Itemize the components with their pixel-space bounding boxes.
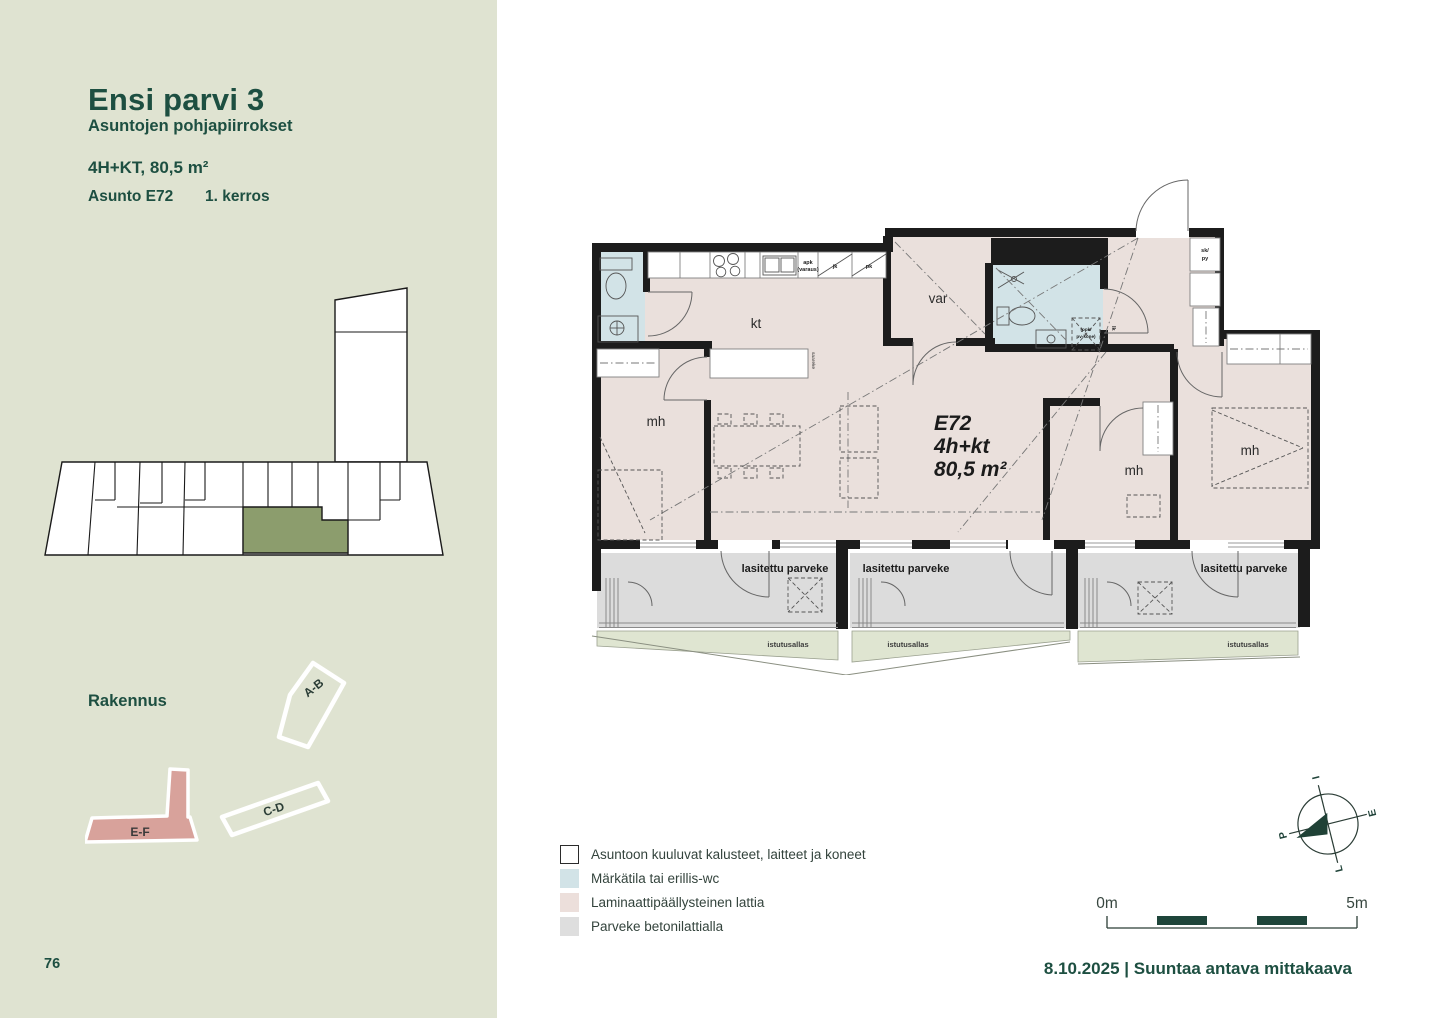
brochure-page: Ensi parvi 3 Asuntojen pohjapiirrokset 4… [0,0,1440,1018]
washer-label-line2: pv-kone) [1076,334,1096,339]
sidebar: Ensi parvi 3 Asuntojen pohjapiirrokset 4… [0,0,497,1018]
dishwasher-label-line1: apk [803,260,813,266]
planter-label-2: istutusallas [887,640,928,649]
legend-swatch-laminate [560,893,579,912]
compass-label-right: E [1366,808,1378,818]
apartment-id: Asunto E72 [88,188,173,205]
balcony-label-1: lasitettu parveke [742,563,829,575]
unit-id-label: E72 [934,412,972,435]
legend-item: Asuntoon kuuluvat kalusteet, laitteet ja… [560,842,866,866]
dishwasher-label-line2: (varaus) [797,267,819,273]
legend-swatch-fixtures [560,845,579,864]
washer-label-line1: (ppk/ [1081,327,1093,332]
legend-label: Märkätila tai erillis-wc [591,871,719,886]
page-subtitle: Asuntojen pohjapiirrokset [88,117,292,136]
room-label-bedroom-3: mh [1241,443,1260,458]
closet-label-line2: py [1202,256,1209,262]
room-label-bedroom-2: mh [1125,463,1144,478]
island-label: saareke [810,352,816,369]
fridge-label: jk [832,264,839,270]
page-title: Ensi parvi 3 [88,82,264,118]
planter-label-1: istutusallas [767,640,808,649]
compass-label-bottom: L [1332,864,1345,872]
compass-label-top: I [1310,774,1322,780]
floor-label: 1. kerros [205,188,270,206]
unit-type-label: 4h+kt [933,435,990,458]
legend-swatch-balcony [560,917,579,936]
building-ab-outline [279,663,344,747]
room-label-storage: var [929,291,948,306]
scale-start-label: 0m [1096,895,1118,912]
balcony-label-2: lasitettu parveke [863,563,950,575]
legend-item: Laminaattipäällysteinen lattia [560,890,866,914]
closet-label-line1: sk/ [1201,248,1209,254]
unit-area-label: 80,5 m² [934,458,1007,481]
legend-label: Laminaattipäällysteinen lattia [591,895,764,910]
page-number: 76 [44,956,60,972]
planter-label-3: istutusallas [1227,640,1268,649]
legend-label: Asuntoon kuuluvat kalusteet, laitteet ja… [591,847,866,862]
legend-item: Märkätila tai erillis-wc [560,866,866,890]
site-diagram: A-B C-D E-F [85,655,355,855]
scale-bar: 0m 5m [1085,888,1370,938]
legend: Asuntoon kuuluvat kalusteet, laitteet ja… [560,842,866,938]
scale-end-label: 5m [1346,895,1368,912]
balcony-label-3: lasitettu parveke [1201,563,1288,575]
building-ef-label: E-F [130,825,149,839]
floor-plan: kt var mh mh mh E72 4h+kt 80,5 m² lasite… [585,170,1335,675]
date-and-scale-note: 8.10.2025 | Suuntaa antava mittakaava [1000,959,1352,979]
compass-rose: I E L P [1278,772,1378,872]
legend-label: Parveke betonilattialla [591,919,723,934]
legend-swatch-wet-room [560,869,579,888]
room-label-kitchen: kt [751,316,762,331]
compass-label-left: P [1278,830,1290,840]
apartment-spec: 4H+KT, 80,5 m² [88,158,208,178]
apartment-unit-row: Asunto E72 1. kerros [88,188,173,206]
freezer-label: pk [866,264,873,270]
building-key-plan [40,285,450,560]
legend-item: Parveke betonilattialla [560,914,866,938]
building-ab-label: A-B [301,676,327,700]
room-label-bedroom-1: mh [647,414,666,429]
